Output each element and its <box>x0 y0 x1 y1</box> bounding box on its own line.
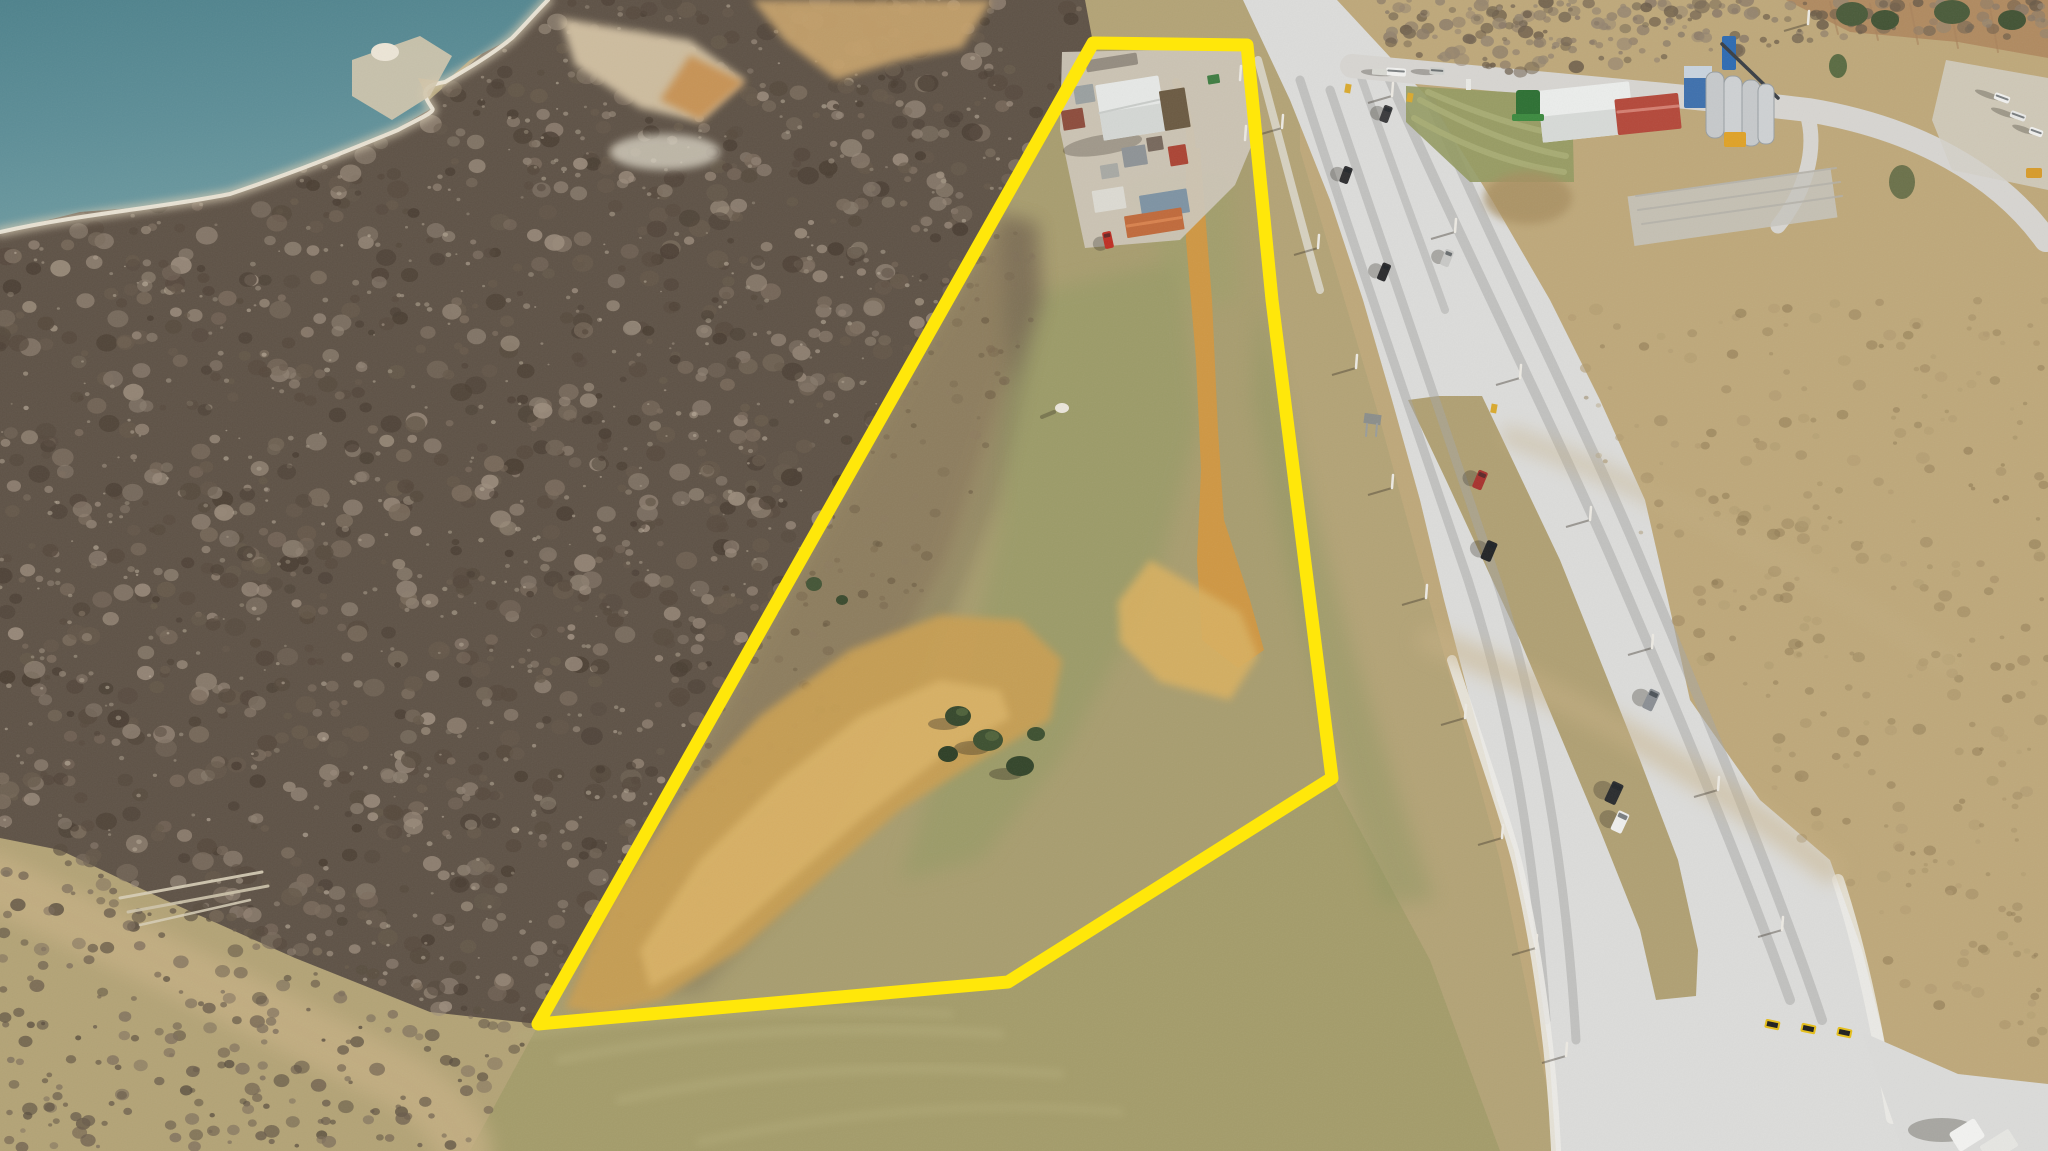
aerial-photo-canvas <box>0 0 2048 1151</box>
aerial-property-photo <box>0 0 2048 1151</box>
